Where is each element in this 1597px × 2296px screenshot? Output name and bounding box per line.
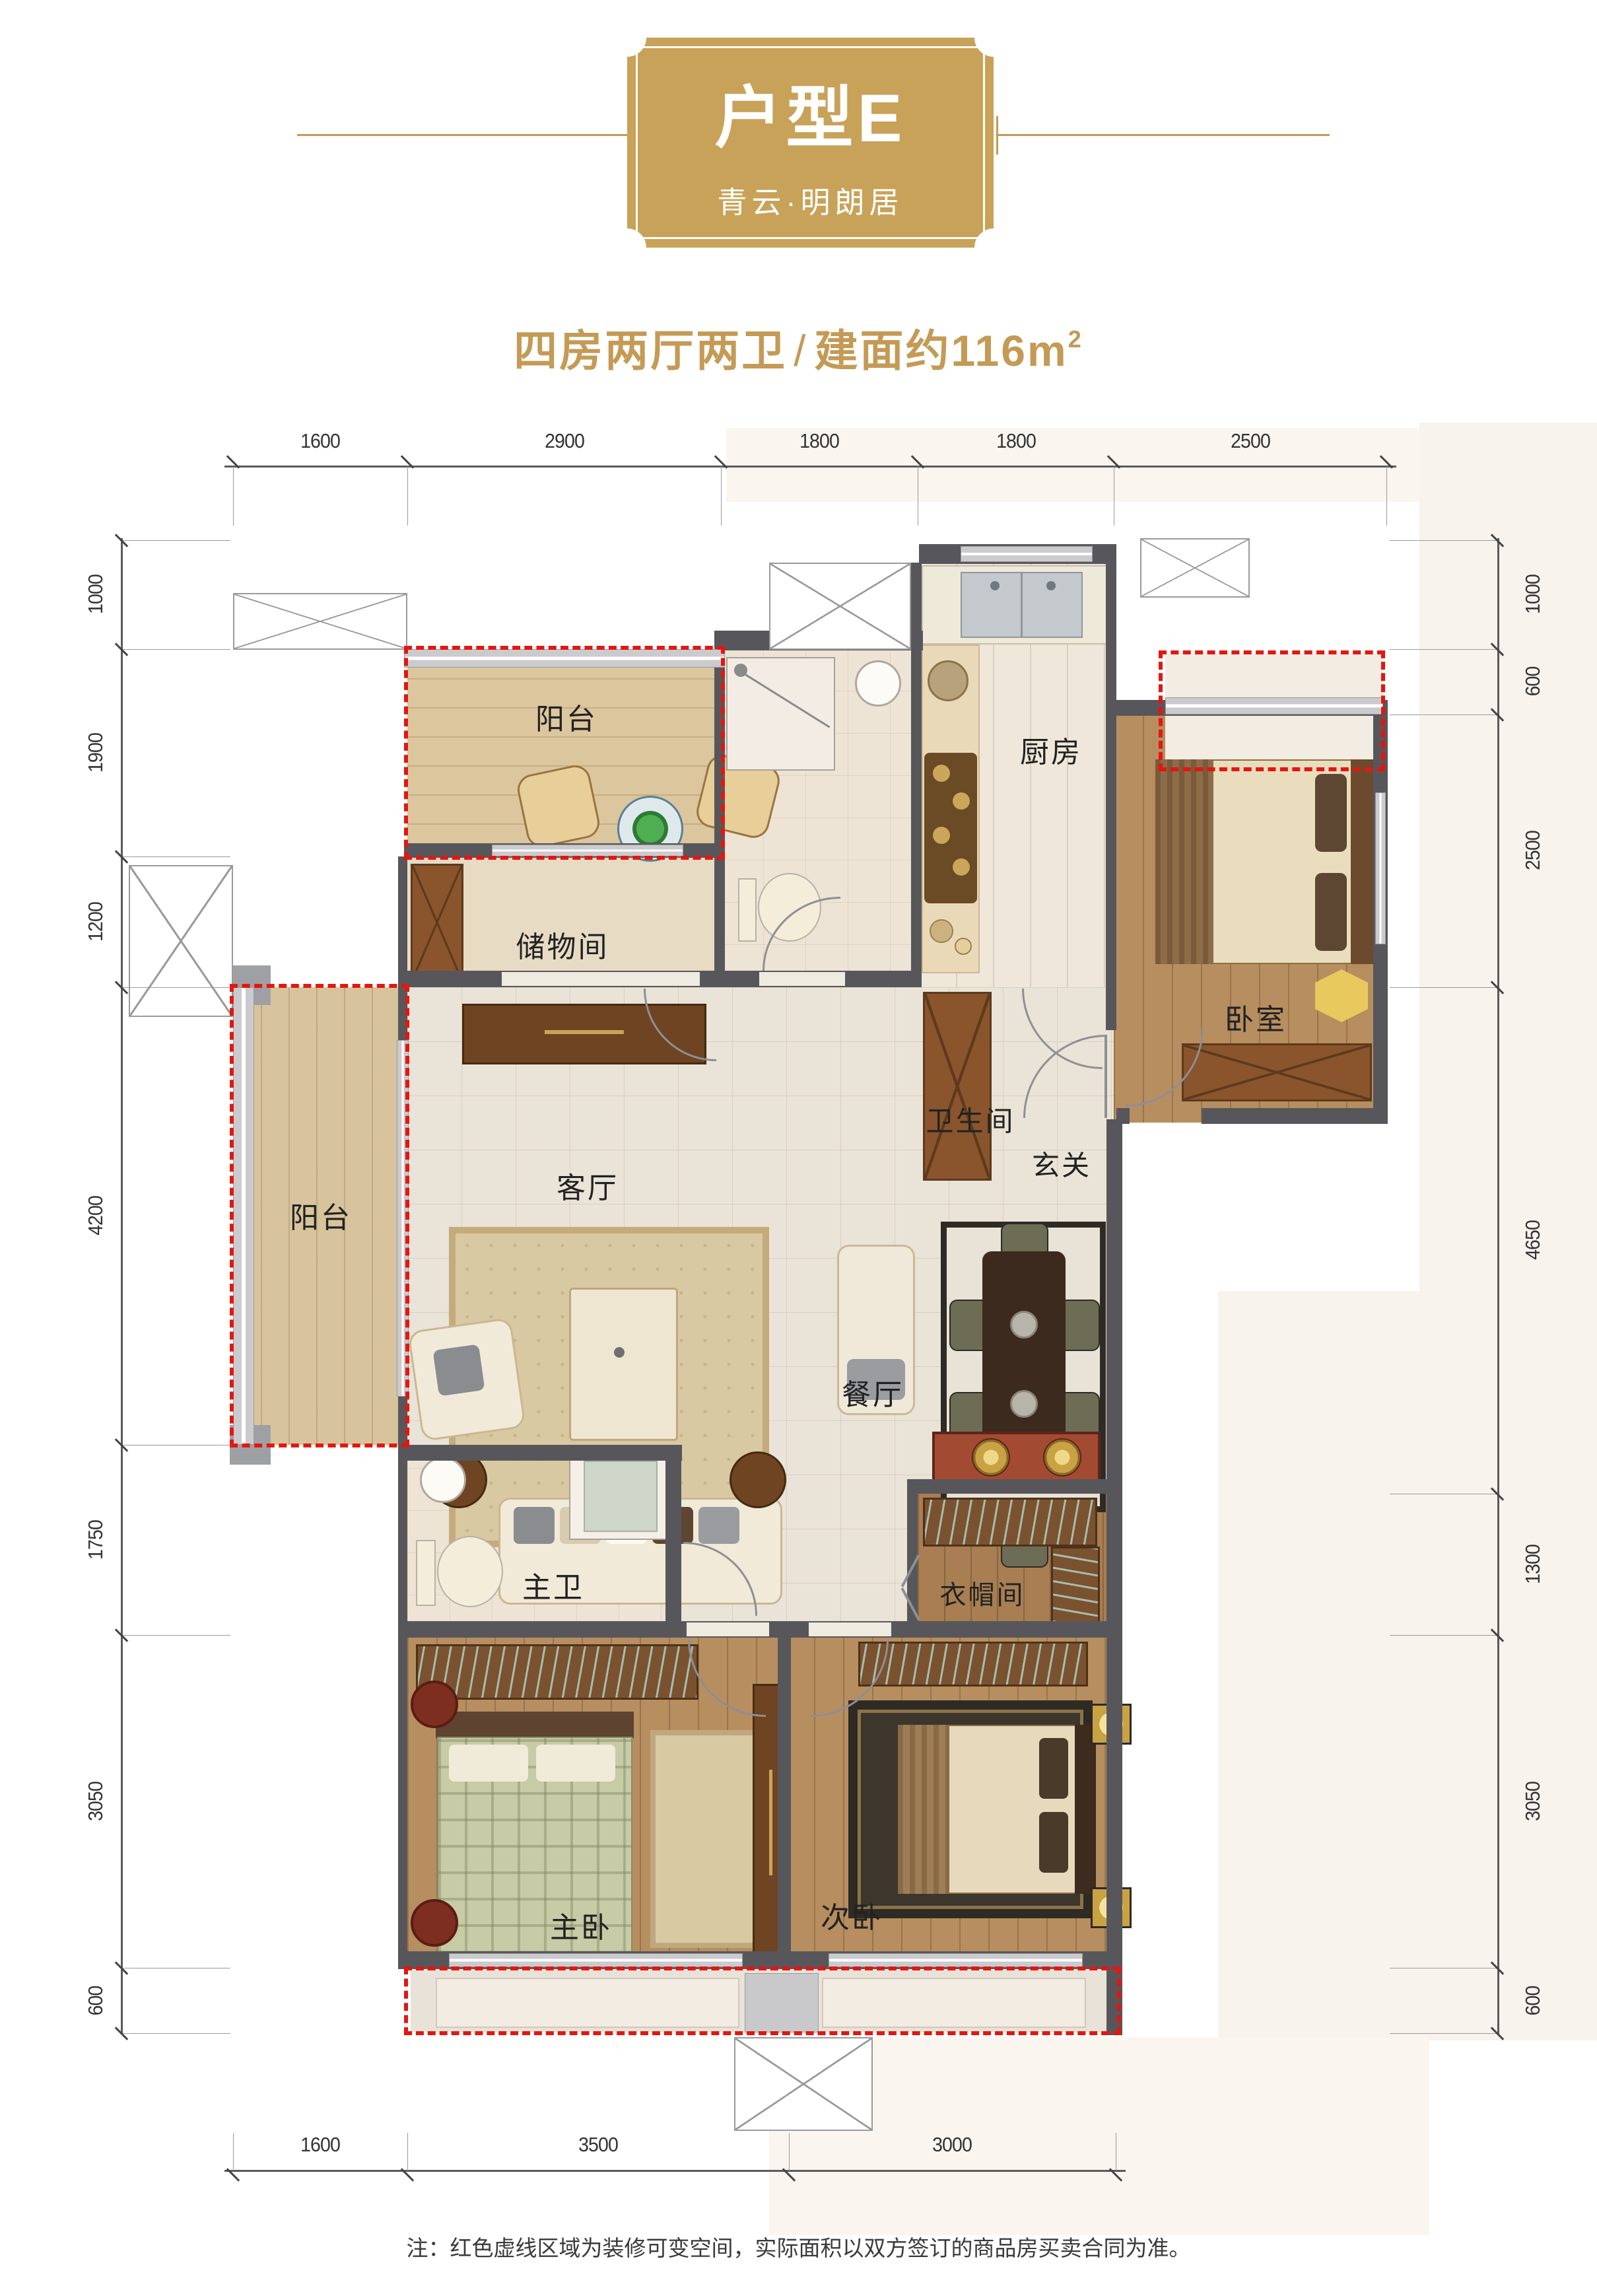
dim-label: 600: [1521, 1986, 1545, 2016]
pillow: [432, 1344, 485, 1396]
cloakroom-wardrobe: [923, 1498, 1097, 1547]
dim-witness: [121, 540, 230, 541]
dim-label: 1600: [300, 429, 340, 453]
dim-label: 1600: [300, 2133, 340, 2157]
dim-witness: [1114, 466, 1114, 526]
dim-witness: [407, 466, 408, 526]
label-cloakroom: 衣帽间: [940, 1574, 1025, 1612]
wall: [911, 563, 922, 987]
pillow: [449, 1745, 528, 1782]
wall: [398, 856, 407, 987]
label-balcony-top: 阳台: [535, 695, 597, 738]
burner-icon: [953, 858, 970, 876]
bowl-icon: [955, 938, 972, 955]
dim-label: 2500: [1521, 831, 1545, 870]
cloakroom-wardrobe: [1051, 1547, 1100, 1630]
faucet-icon: [1046, 581, 1056, 590]
side-table: [730, 1451, 786, 1508]
header-rule-left: [297, 134, 629, 136]
master-bed-headboard: [436, 1712, 634, 1738]
watermark-shape: [1218, 1291, 1419, 2037]
tv-cabinet-handle: [545, 1030, 624, 1034]
pillow: [1039, 1812, 1068, 1873]
headline-area-sup: 2: [1068, 326, 1083, 353]
dim-witness: [1390, 1494, 1497, 1494]
burner-icon: [933, 827, 950, 844]
pillow: [1315, 774, 1347, 852]
dim-label: 1000: [1521, 574, 1545, 614]
dim-label: 1300: [1521, 1545, 1545, 1584]
dim-label: 2900: [545, 429, 584, 453]
badge-subtitle: 青云·明朗居: [718, 178, 904, 221]
dim-line-bottom: [224, 2170, 1126, 2172]
headline: 四房两厅两卫/建面约116m2: [0, 316, 1597, 379]
dim-witness: [1390, 1968, 1497, 1968]
toilet-tank: [738, 878, 757, 942]
second-bed-blanket: [898, 1725, 949, 1894]
storage-cabinet: [411, 864, 463, 981]
pillow: [514, 1507, 555, 1544]
medallion-icon: [972, 1438, 1010, 1477]
wall: [778, 1638, 791, 1968]
label-storage: 储物间: [516, 923, 609, 965]
dim-label: 3050: [84, 1782, 108, 1821]
dim-witness: [1390, 649, 1497, 650]
wall: [398, 1445, 682, 1461]
watermark-shape: [1419, 423, 1597, 2040]
dim-witness: [789, 2133, 790, 2171]
dim-witness: [121, 1445, 230, 1445]
dim-witness: [121, 649, 230, 650]
shower-mat-icon: [584, 1461, 658, 1532]
door-gap: [759, 972, 845, 986]
dim-witness: [121, 1635, 230, 1636]
dim-line-right: [1497, 538, 1499, 2035]
wall: [398, 1445, 407, 1968]
divider-cabinet-handle: [769, 1770, 772, 1875]
wall: [1202, 1108, 1388, 1124]
wall: [1106, 544, 1116, 1030]
equipment-platform: [769, 563, 911, 650]
bathroom-sink: [855, 660, 901, 707]
dim-witness: [1390, 540, 1497, 541]
floor-plan-poster: 户型E 青云·明朗居 四房两厅两卫/建面约116m2 1600 2900 180…: [0, 0, 1597, 2296]
label-balcony-left: 阳台: [290, 1194, 352, 1236]
equipment-platform: [1140, 538, 1250, 598]
burner-icon: [933, 765, 950, 782]
dim-witness: [121, 856, 230, 857]
label-dining-room: 餐厅: [842, 1371, 904, 1413]
bathroom-sink: [420, 1457, 466, 1503]
faucet-icon: [990, 581, 1000, 590]
dim-witness: [407, 2133, 408, 2171]
label-kitchen: 厨房: [1020, 728, 1082, 771]
dim-witness: [1390, 1635, 1497, 1636]
header-rule-right-cap: [996, 116, 998, 155]
label-foyer: 玄关: [1032, 1144, 1091, 1184]
red-dashed-zone-bedroom-bay: [1159, 650, 1385, 771]
dim-witness: [233, 2133, 234, 2171]
label-living-room: 客厅: [557, 1164, 619, 1206]
wall: [1106, 1119, 1122, 2035]
dim-label: 1800: [799, 429, 839, 453]
dim-witness: [1390, 987, 1497, 988]
badge-title: 户型E: [714, 64, 906, 161]
dim-witness: [1386, 466, 1387, 526]
dim-label: 3500: [578, 2133, 618, 2157]
door-gap: [809, 1622, 891, 1636]
headline-rooms: 四房两厅两卫: [514, 326, 787, 375]
headline-area: 建面约116m: [814, 326, 1068, 375]
dim-label: 1800: [996, 429, 1036, 453]
table-decor-icon: [614, 1347, 625, 1358]
plate-icon: [1010, 1390, 1038, 1418]
second-wardrobe: [858, 1642, 1088, 1687]
label-master-bathroom: 主卫: [522, 1564, 584, 1606]
coffee-table: [569, 1288, 678, 1441]
dim-label: 4650: [1521, 1220, 1545, 1260]
bowl-icon: [930, 919, 953, 943]
kitchen-tall-cabinet: [923, 992, 992, 1181]
label-bedroom: 卧室: [1225, 996, 1287, 1038]
type-badge: 户型E 青云·明朗居: [627, 38, 994, 248]
dim-label: 3000: [932, 2133, 972, 2157]
dim-witness: [121, 987, 230, 988]
dim-label: 600: [84, 1986, 108, 2016]
dim-witness: [233, 466, 234, 526]
dim-witness: [918, 466, 918, 526]
dim-label: 4200: [84, 1196, 108, 1235]
header-rule-right: [998, 134, 1330, 136]
window-band: [449, 1953, 743, 1967]
equipment-platform: [129, 865, 233, 1017]
equipment-platform: [734, 2037, 873, 2131]
headline-separator: /: [787, 326, 814, 375]
dim-label: 1000: [84, 574, 108, 614]
dim-witness: [121, 2033, 230, 2034]
guest-bed-headboard: [1351, 759, 1373, 964]
window-band: [961, 546, 1093, 562]
pillow: [698, 1507, 739, 1544]
shower-head-icon: [734, 664, 747, 677]
dim-witness: [1390, 2033, 1497, 2034]
plate-icon: [1010, 1311, 1038, 1339]
red-dashed-zone-balcony-top: [404, 646, 725, 860]
dim-line-left: [121, 538, 123, 2035]
door-gap: [687, 1622, 769, 1636]
toilet-tank: [416, 1540, 436, 1606]
label-second-bedroom: 次卧: [821, 1894, 883, 1936]
window-band: [1375, 792, 1386, 944]
master-wardrobe: [416, 1644, 698, 1700]
toilet-bowl: [437, 1536, 503, 1607]
footnote: 注：红色虚线区域为装修可变空间，实际面积以双方签订的商品房买卖合同为准。: [0, 2231, 1597, 2262]
guest-bed-blanket: [1155, 759, 1213, 964]
dim-witness: [721, 466, 722, 526]
dim-label: 1200: [84, 902, 108, 942]
dim-label: 1900: [84, 733, 108, 773]
bedroom-wardrobe: [1182, 1043, 1372, 1101]
pillow: [1039, 1738, 1068, 1799]
stove: [924, 753, 977, 903]
dim-witness: [1390, 714, 1497, 715]
dim-witness: [121, 1968, 230, 1968]
dim-label: 1750: [84, 1520, 108, 1560]
red-dashed-zone-south-bay: [404, 1966, 1121, 2035]
dim-line-top: [224, 466, 1396, 468]
label-bathroom: 卫生间: [926, 1099, 1015, 1140]
dim-witness: [1116, 2133, 1116, 2171]
dim-label: 3050: [1521, 1782, 1545, 1821]
medallion-icon: [1043, 1438, 1081, 1477]
equipment-platform: [233, 593, 407, 650]
bedroom-stool: [411, 1899, 458, 1947]
entry-door-leaf: [1104, 1035, 1107, 1118]
wall: [918, 1479, 1122, 1494]
dim-label: 600: [1521, 667, 1545, 697]
window-band: [829, 1953, 1083, 1967]
door-gap: [502, 972, 700, 986]
second-bed-headboard: [1075, 1725, 1096, 1894]
pillow: [1315, 873, 1347, 951]
kitchen-sink-divider: [1021, 573, 1023, 637]
bedroom-stool: [411, 1681, 458, 1728]
label-master-bedroom: 主卧: [550, 1904, 612, 1946]
pillow: [536, 1745, 615, 1782]
burner-icon: [953, 792, 970, 810]
wall: [665, 1461, 681, 1638]
dim-label: 2500: [1231, 429, 1270, 453]
pot-icon: [928, 660, 968, 701]
